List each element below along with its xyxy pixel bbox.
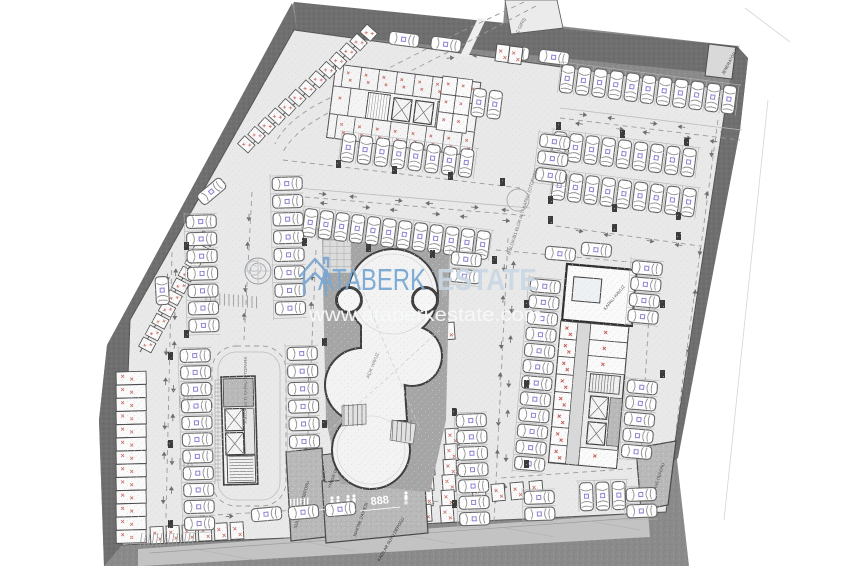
svg-text:BERAT: BERAT [443, 276, 449, 296]
svg-text:ATABERK: ATABERK [318, 262, 426, 297]
svg-text:www.ataberkestate.com: www.ataberkestate.com [308, 304, 542, 326]
svg-text:ESTATE: ESTATE [437, 262, 537, 297]
svg-text:C: C [250, 264, 257, 275]
